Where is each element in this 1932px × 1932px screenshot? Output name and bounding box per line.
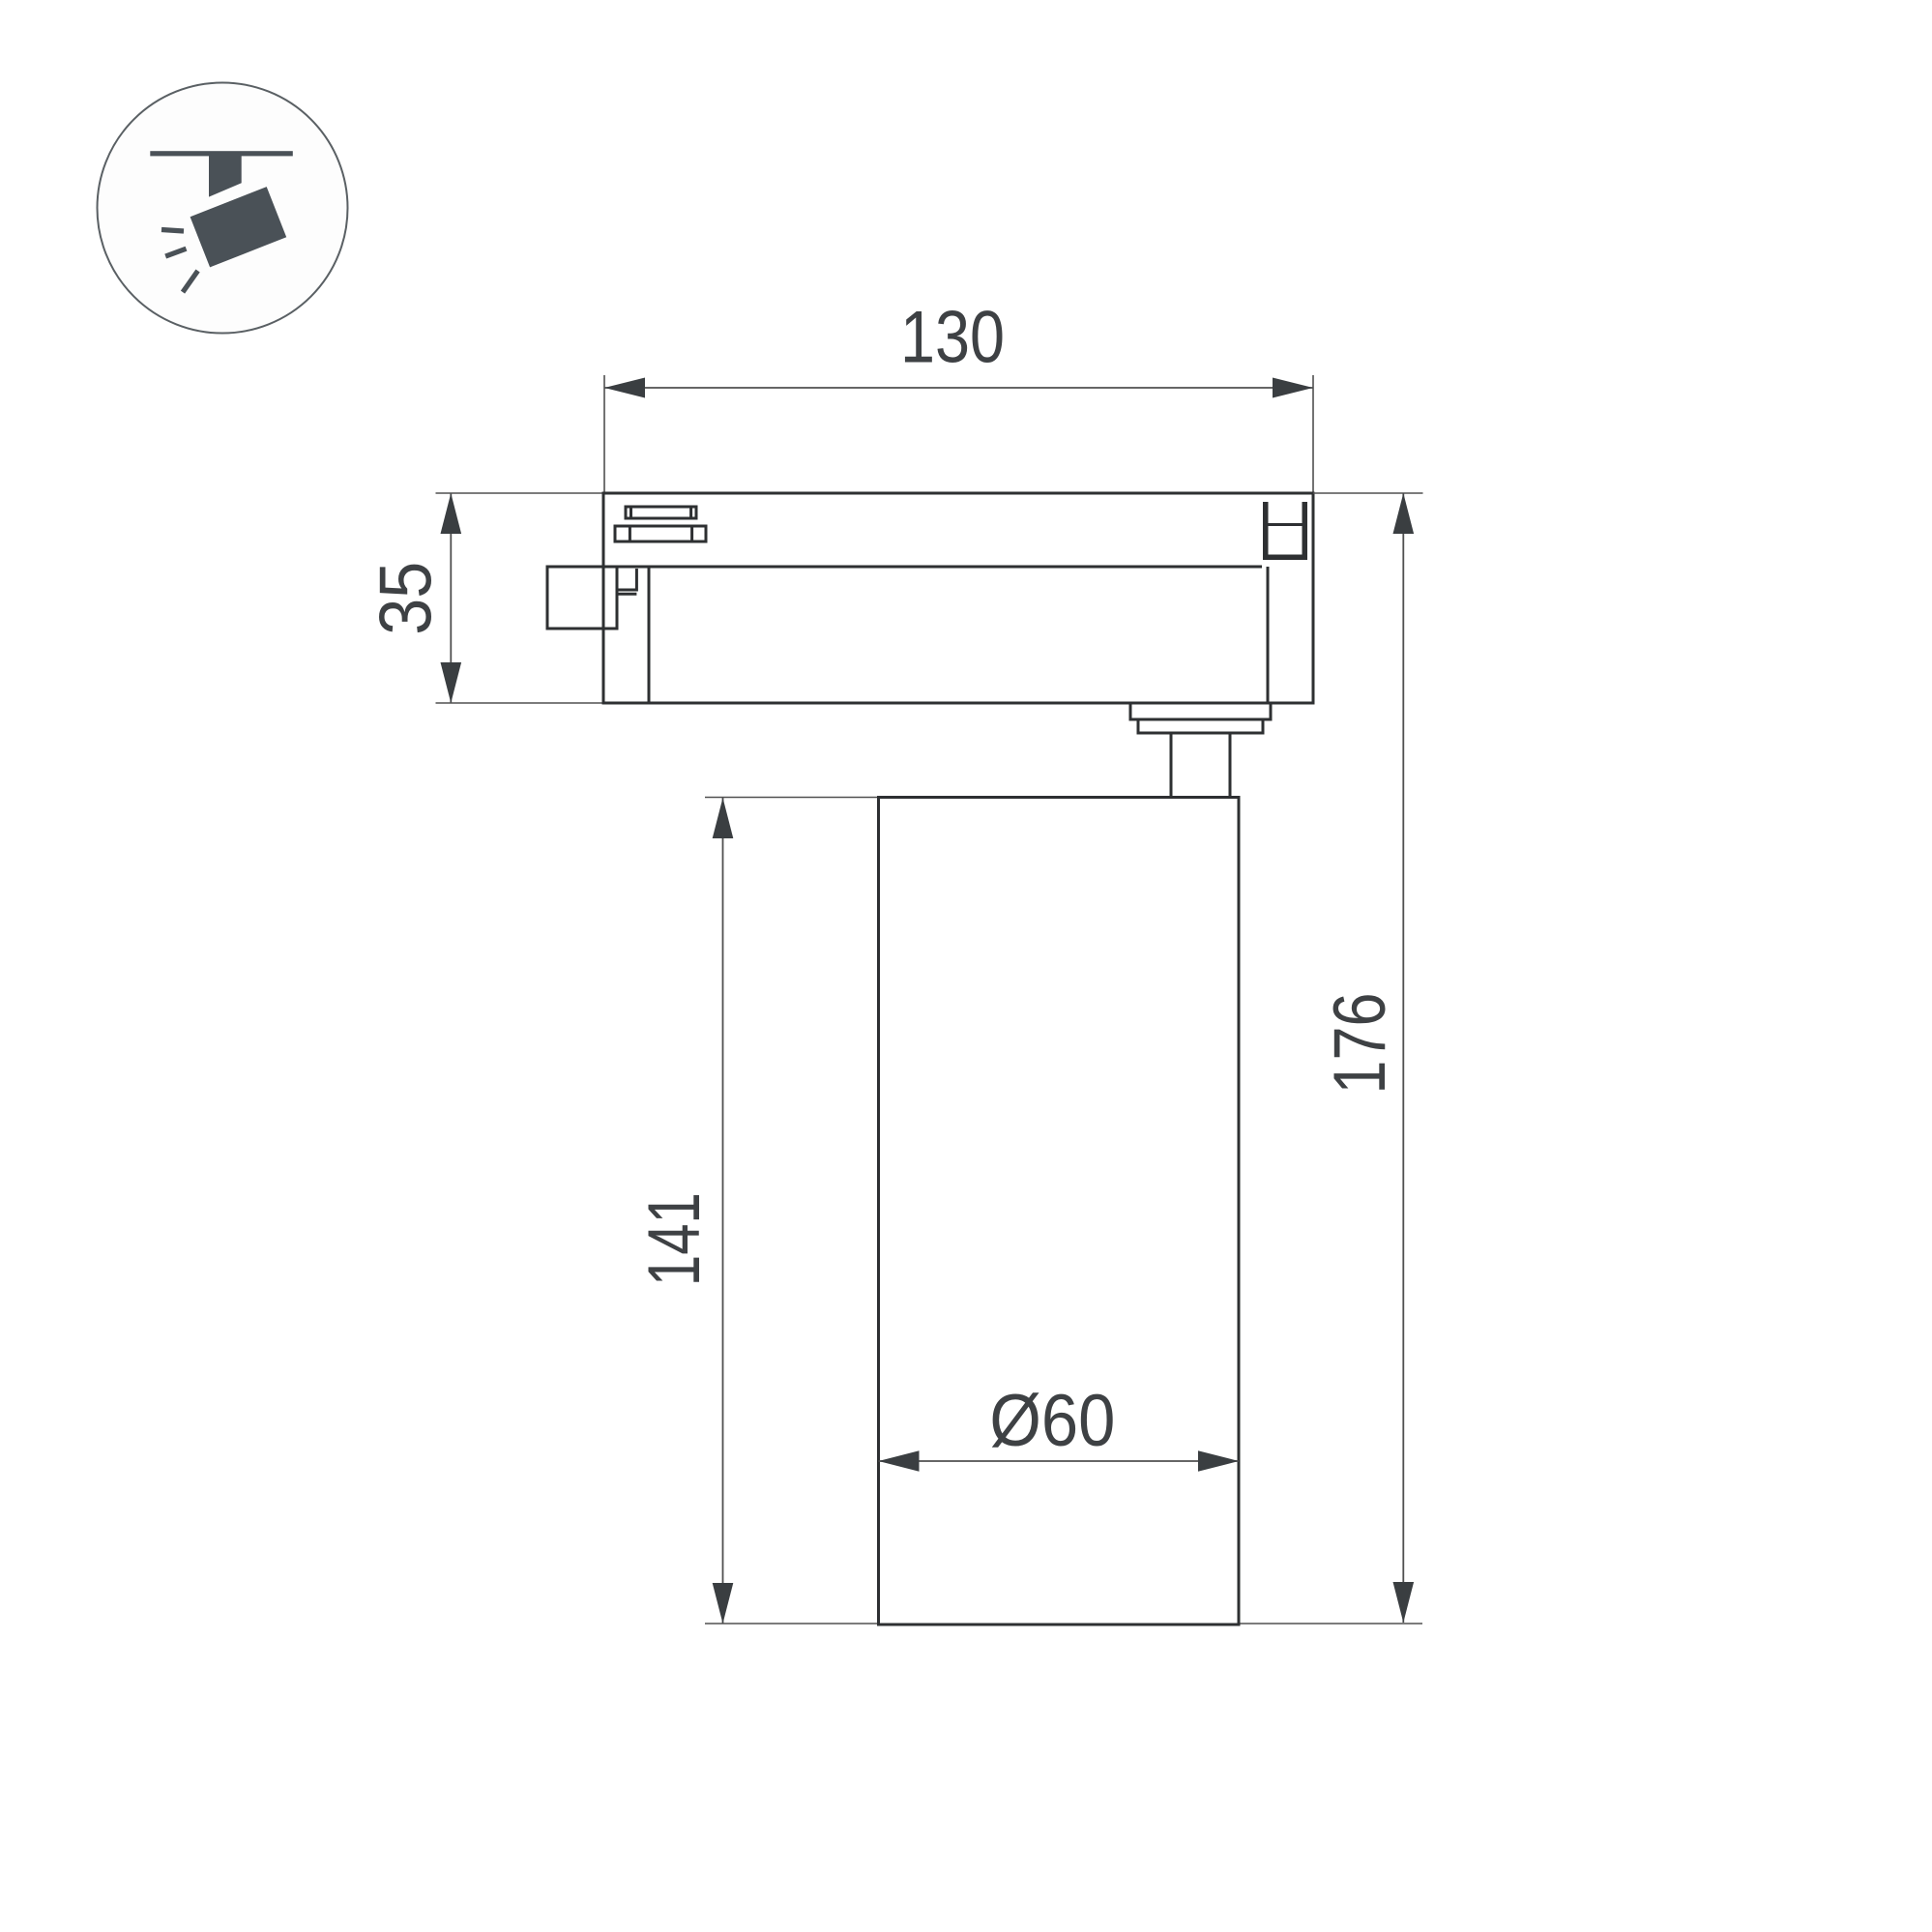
- svg-text:141: 141: [633, 1192, 716, 1286]
- svg-text:130: 130: [900, 297, 1005, 379]
- svg-text:35: 35: [366, 562, 448, 635]
- svg-text:Ø60: Ø60: [989, 1380, 1115, 1462]
- svg-text:176: 176: [1319, 993, 1401, 1095]
